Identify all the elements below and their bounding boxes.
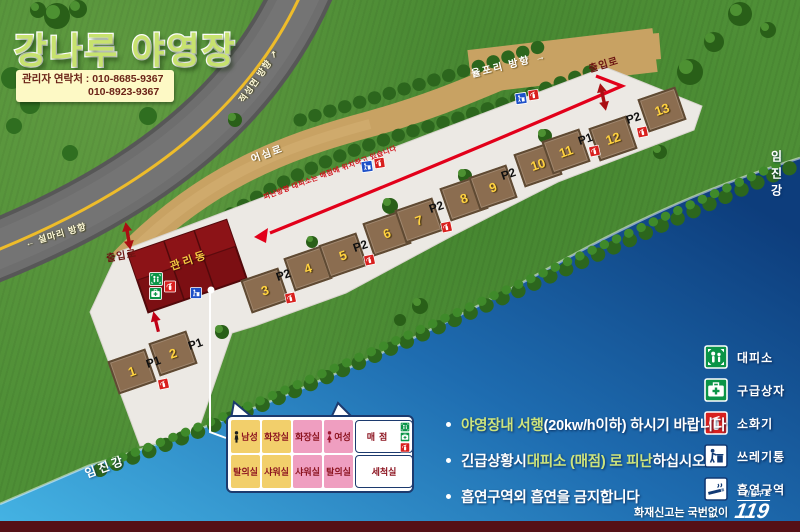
room-changing-f: 탈의실 — [324, 455, 353, 488]
room-toilet-f: 화장실 — [293, 420, 322, 453]
first-aid-icon — [400, 432, 410, 442]
rescue-119-logo: 긴급구조 119 — [734, 492, 773, 522]
first-aid-icon — [704, 378, 728, 402]
male-icon — [233, 431, 240, 443]
legend-item-shelter: 대피소 — [704, 345, 785, 369]
legend-label: 대피소 — [737, 349, 773, 366]
room-shower-m: 샤워실 — [262, 455, 291, 488]
bullet-icon — [446, 422, 451, 427]
trash-bin-icon — [514, 91, 528, 106]
legend-label: 소화기 — [737, 415, 773, 432]
fire-extinguisher-icon — [527, 87, 540, 102]
contact-line2: 010-8923-9367 — [22, 86, 168, 99]
store-icons — [400, 422, 410, 453]
building-floor-plan: 남성 화장실 화장실 여성 매점 탈의실 샤워실 샤워실 탈의실 세척실 — [226, 415, 414, 493]
trash-bin-icon — [190, 287, 202, 299]
room-mens: 남성 — [231, 420, 260, 453]
shelter-icon — [704, 345, 728, 369]
room-toilet-m: 화장실 — [262, 420, 291, 453]
legend-item-first-aid: 구급상자 — [704, 378, 785, 402]
river-label-right: 임진강 — [768, 150, 785, 201]
fire-extinguisher-icon — [164, 279, 176, 294]
trash-bin-icon — [360, 159, 374, 174]
legend-label: 쓰레기통 — [737, 448, 785, 465]
bullet-icon — [446, 458, 451, 463]
room-womens: 여성 — [324, 420, 353, 453]
arrow-left-icon: ← — [24, 236, 36, 248]
fire-report-footer: 화재신고는 국번없이 긴급구조 119 — [634, 502, 770, 522]
legend-label: 구급상자 — [737, 382, 785, 399]
shelter-icon — [400, 422, 410, 432]
bullet-icon — [446, 494, 451, 499]
contact-box: 관리자 연락처 : 010-8685-9367 010-8923-9367 — [16, 70, 174, 102]
campground-map: 강나루 야영장 관리자 연락처 : 010-8685-9367 010-8923… — [0, 0, 800, 532]
fire-report-text: 화재신고는 국번없이 — [634, 504, 728, 520]
fire-extinguisher-icon — [400, 442, 410, 453]
page-title: 강나루 야영장 — [14, 22, 237, 74]
notice-speed: 야영장내 서행 (20kw/h이하) 하시기 바랍니다 — [446, 414, 726, 435]
fire-extinguisher-icon — [373, 155, 386, 170]
bottom-border-strip — [0, 521, 800, 532]
notice-evacuation: 긴급상황시 대피소 (매점) 로 피난하십시오 — [446, 450, 726, 471]
female-icon — [326, 431, 333, 443]
shelter-icon — [149, 272, 163, 286]
room-store: 매점 — [355, 420, 413, 453]
notice-list: 야영장내 서행 (20kw/h이하) 하시기 바랍니다 긴급상황시 대피소 (매… — [446, 414, 726, 507]
contact-line1: 관리자 연락처 : 010-8685-9367 — [22, 73, 168, 86]
room-shower-f: 샤워실 — [293, 455, 322, 488]
room-changing-m: 탈의실 — [231, 455, 260, 488]
first-aid-icon — [149, 287, 162, 300]
room-washing: 세척실 — [355, 455, 413, 488]
